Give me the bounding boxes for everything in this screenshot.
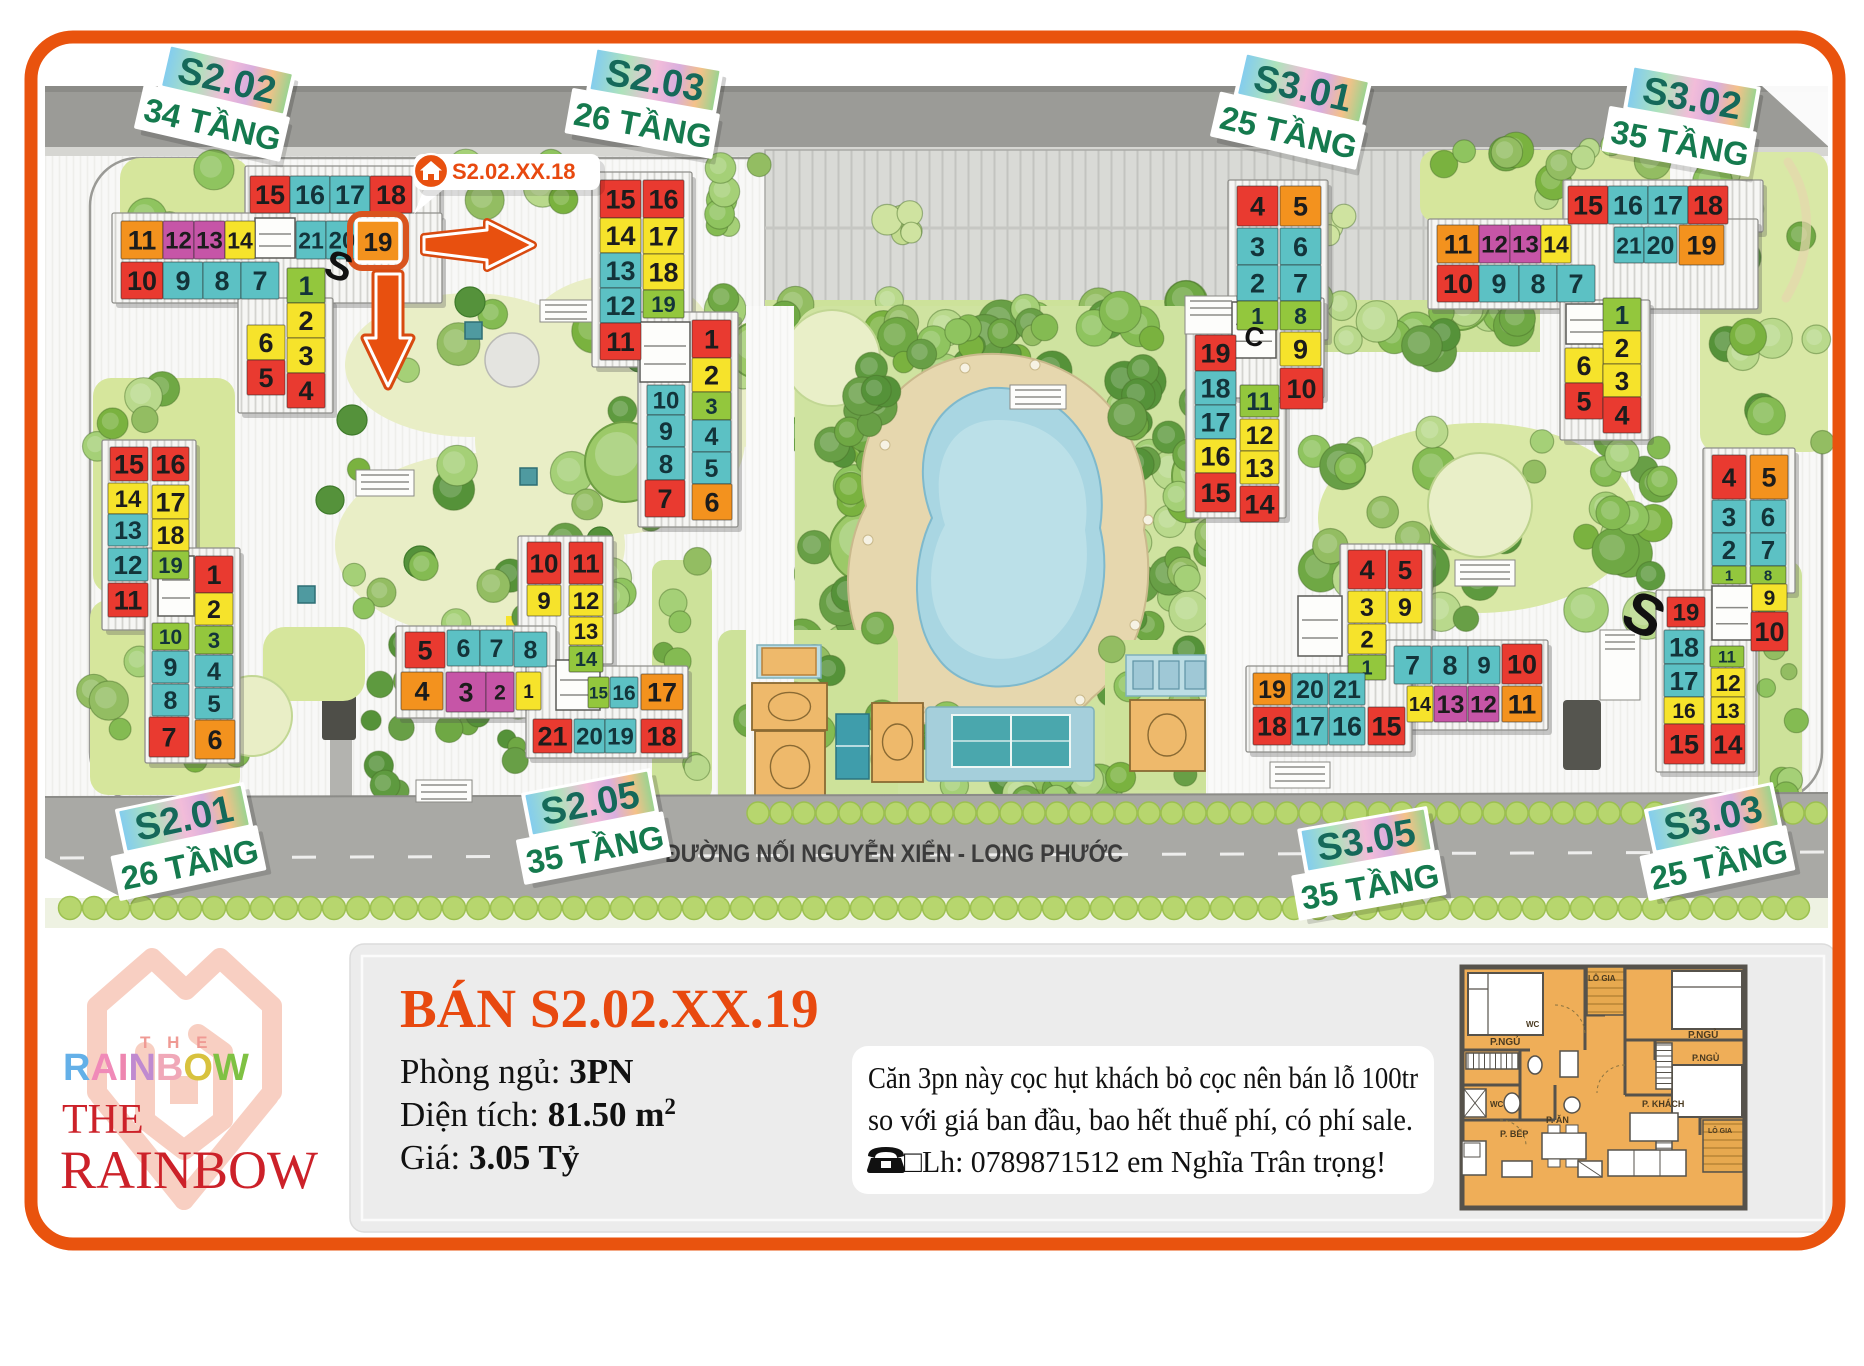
svg-text:19: 19 xyxy=(364,227,393,257)
svg-text:P.NGỦ: P.NGỦ xyxy=(1692,1052,1719,1063)
svg-text:5: 5 xyxy=(1761,463,1776,493)
svg-text:6: 6 xyxy=(1293,232,1308,262)
svg-text:18: 18 xyxy=(376,180,406,210)
svg-text:2: 2 xyxy=(1722,535,1736,565)
svg-text:8: 8 xyxy=(524,637,538,665)
svg-text:WC: WC xyxy=(1490,1100,1504,1109)
svg-text:16: 16 xyxy=(1200,442,1230,472)
svg-text:15: 15 xyxy=(1573,191,1603,221)
svg-text:9: 9 xyxy=(659,418,673,446)
svg-text:6: 6 xyxy=(457,635,471,663)
svg-text:18: 18 xyxy=(1257,712,1287,742)
svg-text:17: 17 xyxy=(1295,712,1325,742)
svg-text:8: 8 xyxy=(1530,269,1545,299)
svg-text:ĐƯỜNG NỐI NGUYỄN XIỂN - LONG P: ĐƯỜNG NỐI NGUYỄN XIỂN - LONG PHƯỚC xyxy=(665,838,1123,868)
svg-text:RAINBOW: RAINBOW xyxy=(60,1140,318,1200)
svg-text:5: 5 xyxy=(417,636,432,666)
svg-text:17: 17 xyxy=(1653,191,1683,221)
svg-text:11: 11 xyxy=(114,586,143,616)
svg-text:8: 8 xyxy=(1442,651,1457,681)
svg-text:11: 11 xyxy=(606,327,635,357)
svg-text:17: 17 xyxy=(155,488,185,518)
svg-text:5: 5 xyxy=(1576,387,1591,417)
svg-text:9: 9 xyxy=(1477,653,1490,680)
svg-text:14: 14 xyxy=(605,221,635,251)
svg-text:15: 15 xyxy=(1371,712,1401,742)
svg-text:2: 2 xyxy=(1615,333,1629,363)
svg-text:19: 19 xyxy=(1200,339,1230,369)
svg-text:17: 17 xyxy=(648,222,678,252)
svg-text:19: 19 xyxy=(607,724,634,751)
svg-text:15: 15 xyxy=(605,185,635,215)
svg-text:13: 13 xyxy=(1437,691,1465,719)
svg-text:2: 2 xyxy=(1250,269,1265,299)
svg-text:10: 10 xyxy=(1507,650,1537,680)
svg-text:Phòng ngủ: 3PN: Phòng ngủ: 3PN xyxy=(400,1052,633,1091)
svg-text:17: 17 xyxy=(1200,408,1230,438)
svg-text:14: 14 xyxy=(1543,231,1569,257)
svg-text:2: 2 xyxy=(207,596,221,624)
svg-text:17: 17 xyxy=(647,678,677,708)
svg-text:11: 11 xyxy=(128,226,157,256)
svg-text:18: 18 xyxy=(648,258,678,288)
svg-text:6: 6 xyxy=(704,488,719,518)
svg-text:12: 12 xyxy=(1481,232,1508,259)
svg-text:9: 9 xyxy=(1398,594,1412,622)
svg-text:15: 15 xyxy=(1200,478,1230,508)
svg-text:Giá: 3.05 Tỷ: Giá: 3.05 Tỷ xyxy=(400,1138,580,1177)
svg-text:8: 8 xyxy=(164,687,178,715)
svg-text:15: 15 xyxy=(1669,730,1699,760)
svg-text:2: 2 xyxy=(298,306,313,336)
svg-text:16: 16 xyxy=(295,180,325,210)
svg-text:6: 6 xyxy=(258,328,273,358)
svg-text:17: 17 xyxy=(1670,666,1699,696)
svg-text:6: 6 xyxy=(1761,502,1775,532)
svg-text:10: 10 xyxy=(1754,617,1784,647)
svg-text:12: 12 xyxy=(1715,670,1741,696)
svg-text:16: 16 xyxy=(155,450,185,480)
svg-text:18: 18 xyxy=(646,722,676,752)
svg-text:14: 14 xyxy=(115,486,142,513)
svg-text:8: 8 xyxy=(1294,303,1307,329)
svg-text:12: 12 xyxy=(573,588,600,615)
svg-text:13: 13 xyxy=(1512,232,1539,259)
svg-text:15: 15 xyxy=(114,450,144,480)
svg-text:3: 3 xyxy=(208,628,220,653)
svg-text:15: 15 xyxy=(589,684,608,703)
svg-text:11: 11 xyxy=(572,548,600,578)
svg-text:P.NGỦ: P.NGỦ xyxy=(1490,1035,1520,1048)
svg-text:11: 11 xyxy=(1444,230,1473,260)
svg-text:19: 19 xyxy=(1686,231,1716,261)
svg-text:9: 9 xyxy=(1293,335,1308,365)
svg-text:7: 7 xyxy=(1761,535,1775,565)
svg-text:1: 1 xyxy=(298,271,313,301)
svg-text:19: 19 xyxy=(651,292,675,317)
svg-text:10: 10 xyxy=(159,626,182,649)
svg-text:12: 12 xyxy=(1470,692,1497,719)
svg-text:4: 4 xyxy=(207,658,221,686)
svg-text:16: 16 xyxy=(1332,712,1362,742)
svg-text:9: 9 xyxy=(164,654,178,682)
svg-text:2: 2 xyxy=(704,361,719,391)
svg-text:THE: THE xyxy=(62,1097,144,1143)
svg-text:7: 7 xyxy=(1568,269,1583,299)
svg-text:4: 4 xyxy=(1359,555,1374,585)
svg-text:13: 13 xyxy=(574,619,598,644)
svg-text:9: 9 xyxy=(537,588,550,615)
svg-text:11: 11 xyxy=(1718,648,1736,667)
svg-text:Căn 3pn này cọc hụt khách bỏ c: Căn 3pn này cọc hụt khách bỏ cọc nên bán… xyxy=(868,1060,1419,1095)
svg-text:3: 3 xyxy=(458,678,473,708)
svg-text:12: 12 xyxy=(605,291,635,321)
svg-text:14: 14 xyxy=(227,227,253,253)
svg-text:20: 20 xyxy=(576,724,603,751)
svg-text:12: 12 xyxy=(1246,422,1274,450)
svg-text:5: 5 xyxy=(1398,555,1412,585)
svg-text:20: 20 xyxy=(1296,676,1324,704)
svg-text:so với giá ban đầu, bao hết th: so với giá ban đầu, bao hết thuế phí, có… xyxy=(868,1102,1413,1137)
svg-text:9: 9 xyxy=(1764,587,1776,610)
svg-text:19: 19 xyxy=(1258,676,1286,704)
svg-text:14: 14 xyxy=(1409,694,1432,716)
svg-text:20: 20 xyxy=(1647,232,1675,260)
svg-text:21: 21 xyxy=(298,227,324,253)
svg-text:11: 11 xyxy=(1246,388,1273,416)
svg-text:4: 4 xyxy=(1250,192,1265,222)
svg-text:16: 16 xyxy=(1613,191,1643,221)
svg-text:13: 13 xyxy=(605,256,635,286)
svg-text:10: 10 xyxy=(1286,374,1316,404)
svg-text:21: 21 xyxy=(1333,676,1361,704)
svg-text:19: 19 xyxy=(1673,600,1700,627)
svg-text:8: 8 xyxy=(214,266,229,296)
svg-text:3: 3 xyxy=(1722,502,1736,532)
svg-text:Diện tích: 81.50 m2: Diện tích: 81.50 m2 xyxy=(400,1094,676,1134)
svg-text:□Lh: 0789871512 em Nghĩa Trân: □Lh: 0789871512 em Nghĩa Trân trọng! xyxy=(904,1144,1386,1179)
svg-text:14: 14 xyxy=(575,649,598,671)
svg-text:4: 4 xyxy=(1614,401,1629,431)
svg-text:21: 21 xyxy=(1616,232,1642,258)
svg-text:10: 10 xyxy=(1443,269,1473,299)
svg-text:4: 4 xyxy=(414,677,429,707)
svg-text:16: 16 xyxy=(648,185,678,215)
svg-text:21: 21 xyxy=(537,722,567,752)
svg-text:9: 9 xyxy=(175,266,190,296)
svg-text:12: 12 xyxy=(165,228,192,255)
svg-text:3: 3 xyxy=(1250,232,1265,262)
svg-text:16: 16 xyxy=(612,682,635,705)
svg-text:5: 5 xyxy=(705,455,719,483)
svg-text:3: 3 xyxy=(705,394,717,419)
svg-text:2: 2 xyxy=(494,682,506,705)
svg-text:10: 10 xyxy=(653,388,680,415)
svg-text:3: 3 xyxy=(1615,366,1629,396)
svg-text:7: 7 xyxy=(1405,651,1420,681)
svg-text:4: 4 xyxy=(1722,462,1737,492)
svg-text:P. ĂN: P. ĂN xyxy=(1546,1115,1569,1125)
svg-text:2: 2 xyxy=(1360,627,1373,654)
svg-text:11: 11 xyxy=(1508,690,1537,720)
svg-text:8: 8 xyxy=(1764,567,1772,584)
svg-text:6: 6 xyxy=(207,725,222,755)
svg-text:17: 17 xyxy=(335,180,365,210)
svg-text:13: 13 xyxy=(1245,453,1274,483)
svg-text:18: 18 xyxy=(1200,374,1230,404)
svg-text:RAINBOW: RAINBOW xyxy=(63,1047,249,1089)
svg-text:7: 7 xyxy=(1293,269,1308,299)
svg-text:WC: WC xyxy=(1526,1020,1540,1029)
svg-text:15: 15 xyxy=(255,180,285,210)
svg-text:1: 1 xyxy=(1615,300,1629,330)
svg-text:3: 3 xyxy=(1360,594,1374,622)
svg-text:14: 14 xyxy=(1244,490,1274,520)
svg-text:7: 7 xyxy=(657,484,672,514)
svg-text:3: 3 xyxy=(298,341,313,371)
svg-text:16: 16 xyxy=(1672,700,1695,723)
svg-text:10: 10 xyxy=(127,266,157,296)
svg-text:1: 1 xyxy=(1725,567,1733,584)
svg-text:7: 7 xyxy=(161,723,176,753)
svg-text:4: 4 xyxy=(298,376,313,406)
svg-text:12: 12 xyxy=(114,550,143,580)
svg-text:13: 13 xyxy=(1716,700,1739,723)
svg-text:6: 6 xyxy=(1576,351,1591,381)
svg-text:9: 9 xyxy=(1491,269,1506,299)
svg-text:1: 1 xyxy=(523,682,534,703)
svg-text:13: 13 xyxy=(196,228,223,255)
svg-text:BÁN S2.02.XX.19: BÁN S2.02.XX.19 xyxy=(400,978,819,1039)
svg-text:5: 5 xyxy=(258,363,273,393)
svg-text:LÔ GIA: LÔ GIA xyxy=(1588,974,1616,983)
svg-text:1: 1 xyxy=(704,325,719,355)
svg-text:7: 7 xyxy=(252,266,267,296)
svg-text:4: 4 xyxy=(705,423,719,451)
svg-text:14: 14 xyxy=(1714,729,1743,759)
svg-text:18: 18 xyxy=(157,522,185,550)
svg-text:7: 7 xyxy=(490,635,504,663)
svg-text:P.NGỦ: P.NGỦ xyxy=(1688,1028,1718,1041)
svg-text:5: 5 xyxy=(207,691,220,718)
svg-text:S2.02.XX.18: S2.02.XX.18 xyxy=(452,159,576,184)
svg-text:8: 8 xyxy=(659,449,673,479)
svg-text:10: 10 xyxy=(530,548,559,578)
svg-text:18: 18 xyxy=(1669,633,1699,663)
svg-text:13: 13 xyxy=(114,517,142,545)
svg-text:5: 5 xyxy=(1293,192,1308,222)
svg-text:1: 1 xyxy=(206,560,221,590)
svg-text:18: 18 xyxy=(1693,191,1723,221)
svg-text:19: 19 xyxy=(158,553,182,578)
svg-text:P. KHÁCH: P. KHÁCH xyxy=(1642,1099,1684,1109)
svg-text:LÔ GIA: LÔ GIA xyxy=(1708,1126,1732,1135)
